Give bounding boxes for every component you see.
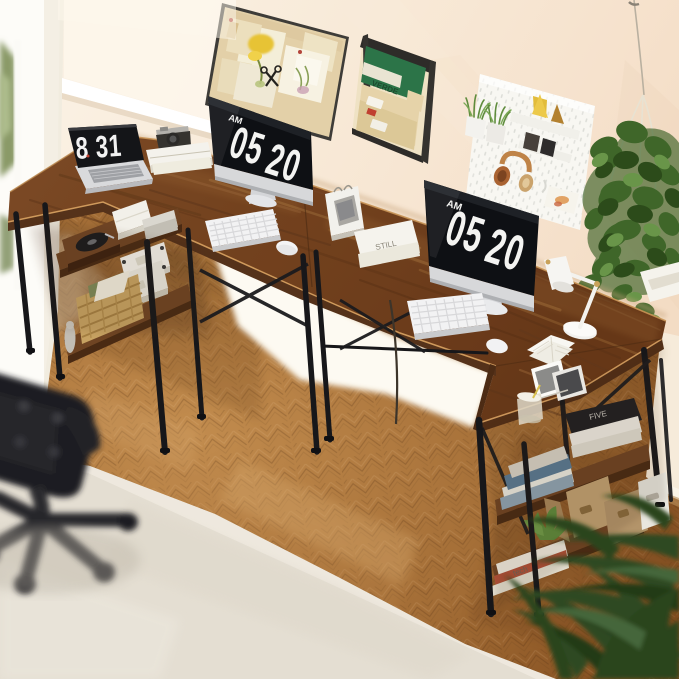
svg-text:8 31: 8 31 bbox=[74, 128, 123, 166]
